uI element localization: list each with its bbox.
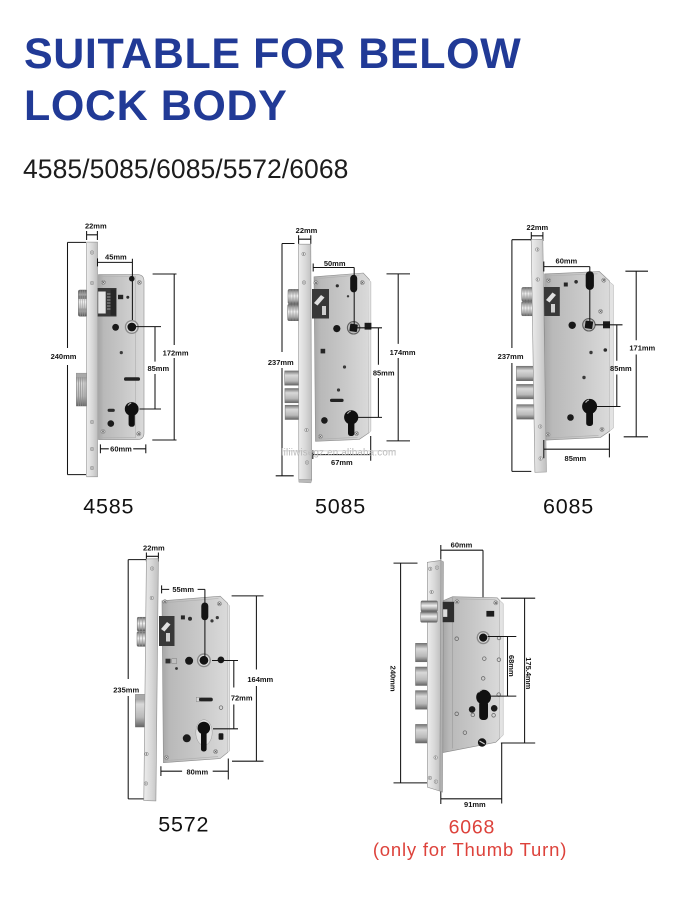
svg-text:60mm: 60mm bbox=[110, 445, 132, 454]
svg-text:4585: 4585 bbox=[83, 494, 134, 518]
svg-text:240mm: 240mm bbox=[51, 352, 77, 361]
svg-text:85mm: 85mm bbox=[565, 454, 587, 463]
svg-text:85mm: 85mm bbox=[373, 368, 395, 377]
svg-text:60mm: 60mm bbox=[451, 540, 473, 549]
svg-text:67mm: 67mm bbox=[331, 458, 353, 467]
svg-text:60mm: 60mm bbox=[556, 256, 578, 265]
svg-text:22mm: 22mm bbox=[296, 226, 318, 235]
svg-text:237mm: 237mm bbox=[498, 352, 524, 361]
svg-text:22mm: 22mm bbox=[143, 544, 165, 553]
svg-text:6068: 6068 bbox=[449, 816, 496, 838]
svg-text:175.4mm: 175.4mm bbox=[524, 657, 533, 689]
svg-text:172mm: 172mm bbox=[163, 348, 189, 357]
svg-text:91mm: 91mm bbox=[464, 800, 486, 809]
svg-text:22mm: 22mm bbox=[85, 222, 107, 231]
svg-text:(only for Thumb Turn): (only for Thumb Turn) bbox=[373, 839, 567, 860]
svg-text:174mm: 174mm bbox=[390, 348, 416, 357]
svg-text:235mm: 235mm bbox=[113, 686, 139, 695]
svg-text:68mm: 68mm bbox=[507, 655, 516, 677]
svg-text:72mm: 72mm bbox=[231, 693, 253, 702]
svg-text:171mm: 171mm bbox=[629, 343, 655, 352]
svg-text:22mm: 22mm bbox=[527, 223, 549, 232]
svg-text:85mm: 85mm bbox=[147, 364, 169, 373]
svg-text:50mm: 50mm bbox=[324, 259, 346, 268]
svg-text:164mm: 164mm bbox=[247, 675, 273, 684]
svg-text:5572: 5572 bbox=[158, 812, 209, 836]
svg-text:85mm: 85mm bbox=[610, 364, 632, 373]
svg-text:5085: 5085 bbox=[315, 494, 366, 518]
svg-text:55mm: 55mm bbox=[172, 585, 194, 594]
svg-text:liliiwisegz.en.alibaba.com: liliiwisegz.en.alibaba.com bbox=[281, 448, 396, 459]
svg-text:240mm: 240mm bbox=[389, 666, 398, 692]
svg-text:45mm: 45mm bbox=[105, 253, 127, 262]
svg-text:237mm: 237mm bbox=[268, 358, 294, 367]
svg-text:6085: 6085 bbox=[543, 494, 594, 518]
svg-text:80mm: 80mm bbox=[186, 767, 208, 776]
